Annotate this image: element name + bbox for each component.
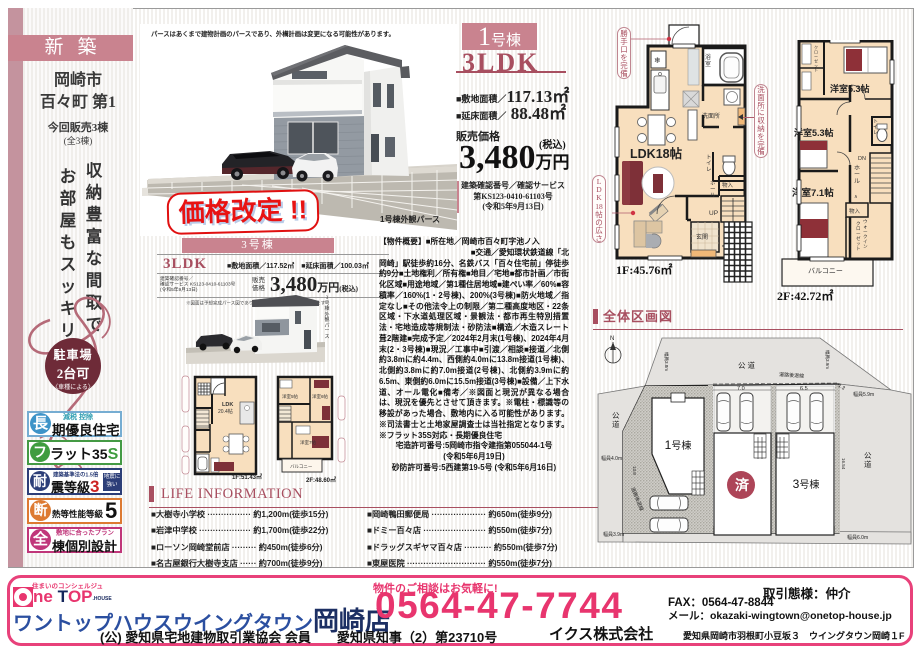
- svg-text:公道: 公道: [864, 451, 872, 469]
- svg-text:ホール: ホール: [854, 165, 860, 185]
- svg-text:幅員3.9m: 幅員3.9m: [603, 531, 624, 538]
- svg-text:❄: ❄: [654, 56, 661, 65]
- svg-text:幅員3.9m: 幅員3.9m: [824, 350, 831, 369]
- svg-text:幅員4.0m: 幅員4.0m: [601, 455, 622, 462]
- svg-text:公道: 公道: [738, 360, 757, 370]
- svg-text:物入: 物入: [722, 181, 734, 189]
- svg-text:洋室6帖: 洋室6帖: [312, 393, 329, 400]
- svg-text:浴室: 浴室: [705, 53, 711, 68]
- svg-text:玄関: 玄関: [696, 233, 708, 241]
- svg-text:物入: 物入: [849, 207, 861, 215]
- svg-text:7.0: 7.0: [737, 386, 745, 392]
- svg-text:クローゼット: クローゼット: [856, 221, 861, 251]
- svg-text:洋室5帖: 洋室5帖: [282, 393, 299, 400]
- svg-text:ウォークイン: ウォークイン: [863, 218, 868, 249]
- svg-text:DN: DN: [858, 156, 866, 162]
- svg-text:バルコニー: バルコニー: [808, 267, 843, 275]
- svg-text:洗面所: 洗面所: [702, 112, 720, 120]
- svg-text:13.8: 13.8: [632, 466, 637, 475]
- svg-text:公道: 公道: [612, 411, 620, 429]
- svg-text:20.4帖: 20.4帖: [218, 408, 233, 415]
- svg-text:16.54: 16.54: [841, 458, 846, 470]
- svg-text:ホール: ホール: [710, 180, 716, 199]
- svg-text:UP: UP: [709, 210, 718, 217]
- svg-text:洋室7帖: 洋室7帖: [300, 439, 317, 446]
- svg-text:LDK: LDK: [222, 402, 233, 408]
- svg-text:クローゼット: クローゼット: [814, 44, 818, 73]
- svg-text:バルコニー: バルコニー: [290, 464, 313, 469]
- svg-text:∧: ∧: [854, 194, 858, 200]
- svg-text:LDK18帖: LDK18帖: [630, 146, 683, 161]
- svg-text:N: N: [610, 336, 614, 342]
- svg-text:幅員3.8m: 幅員3.8m: [663, 352, 670, 371]
- svg-text:済: 済: [735, 477, 750, 493]
- svg-text:3号棟: 3号棟: [793, 477, 820, 491]
- svg-text:トイレ: トイレ: [706, 155, 712, 173]
- svg-text:幅員6.0m: 幅員6.0m: [847, 534, 868, 541]
- svg-text:幅員5.9m: 幅員5.9m: [853, 391, 874, 398]
- svg-text:1号棟: 1号棟: [665, 438, 692, 452]
- svg-text:トイレ: トイレ: [873, 119, 878, 136]
- svg-text:6.5: 6.5: [800, 386, 808, 392]
